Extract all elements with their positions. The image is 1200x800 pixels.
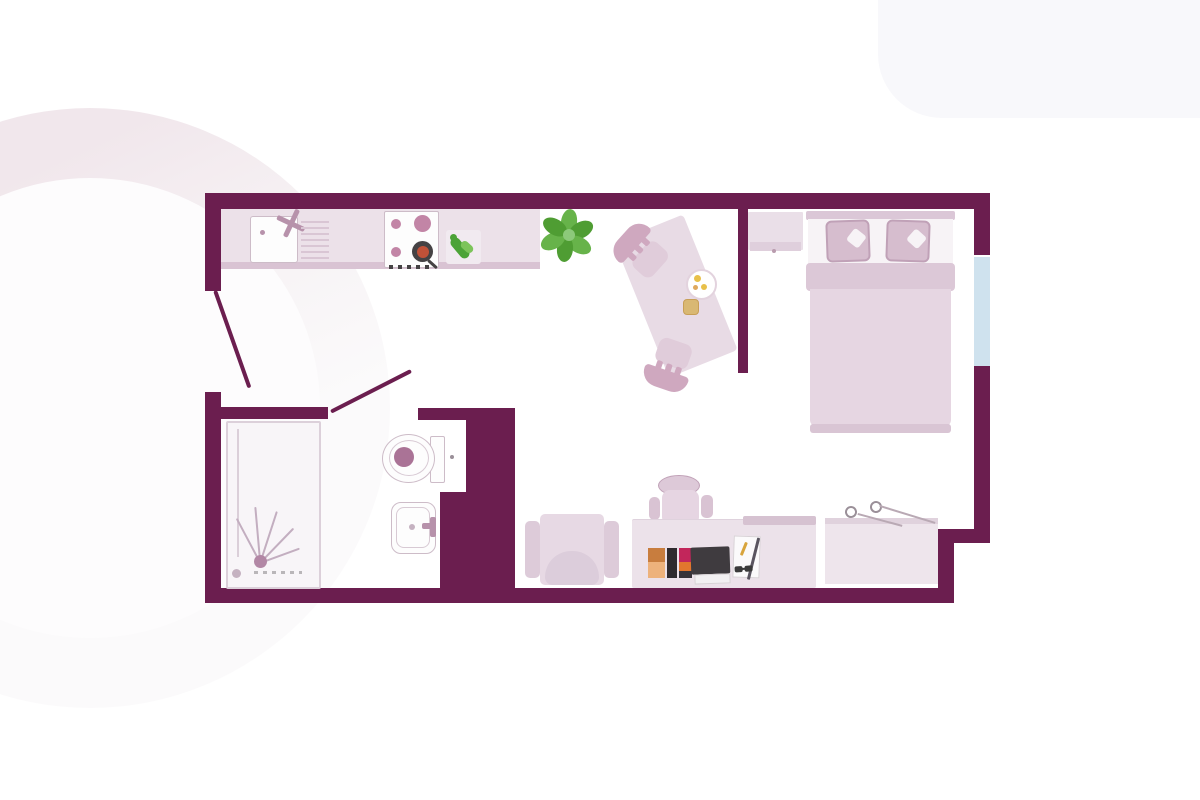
floor-plan-image [0, 0, 1200, 800]
background-rounded-shape [878, 0, 1200, 118]
glasses-icon [734, 565, 753, 573]
shower [226, 421, 321, 589]
stove [384, 211, 439, 268]
shower-head-icon [254, 555, 267, 568]
books-icon [648, 548, 692, 578]
nightstand-knob [772, 249, 776, 253]
laptop-icon [690, 546, 730, 582]
cup-icon [683, 299, 699, 315]
duvet-fold [806, 263, 955, 291]
stove-vent-dashes [389, 265, 434, 269]
pillow-left [825, 219, 870, 263]
notepad-icon [732, 535, 764, 582]
cutting-board [446, 230, 481, 264]
wall-left-lower [205, 392, 221, 603]
wall-step-vertical [938, 529, 954, 603]
wall-bottom [205, 588, 954, 603]
wall-bedroom-partition [738, 209, 748, 373]
office-chair-arm-right [701, 495, 713, 518]
wall-bathroom-top [218, 407, 328, 419]
plate-icon [686, 269, 717, 300]
wall-bathroom-column-lower [440, 492, 515, 591]
basin-drain [409, 524, 415, 530]
wall-bathroom-door-stub [418, 408, 472, 420]
armchair-arm-right [604, 521, 619, 578]
wall-bathroom-column-upper [466, 408, 515, 494]
sink-drain [260, 230, 265, 235]
wall-right-lower [974, 366, 990, 543]
burner-small-2 [391, 247, 401, 257]
dish-drainer-icon [301, 221, 329, 262]
wall-left-upper [205, 193, 221, 291]
kitchen-counter-edge [221, 262, 540, 269]
window [974, 255, 990, 370]
duvet [810, 289, 951, 426]
wall-right-upper [974, 193, 990, 255]
bed-foot-edge [810, 424, 951, 433]
armchair [524, 513, 620, 587]
office-chair-arm-left [649, 497, 660, 520]
pillow-right [885, 219, 930, 263]
flush-button [450, 455, 454, 459]
double-bed [806, 211, 955, 435]
nightstand [748, 212, 803, 250]
shower-drain [232, 569, 241, 578]
burner-small-1 [391, 219, 401, 229]
wall-top [205, 193, 990, 209]
wardrobe [825, 518, 938, 584]
burner-large [414, 215, 431, 232]
potted-plant-icon [546, 211, 594, 263]
frying-pan-icon [412, 241, 433, 262]
armchair-arm-left [525, 521, 540, 578]
toilet-icon [382, 434, 446, 484]
washbasin-icon [391, 502, 443, 553]
desk-shelf-edge [743, 516, 816, 525]
